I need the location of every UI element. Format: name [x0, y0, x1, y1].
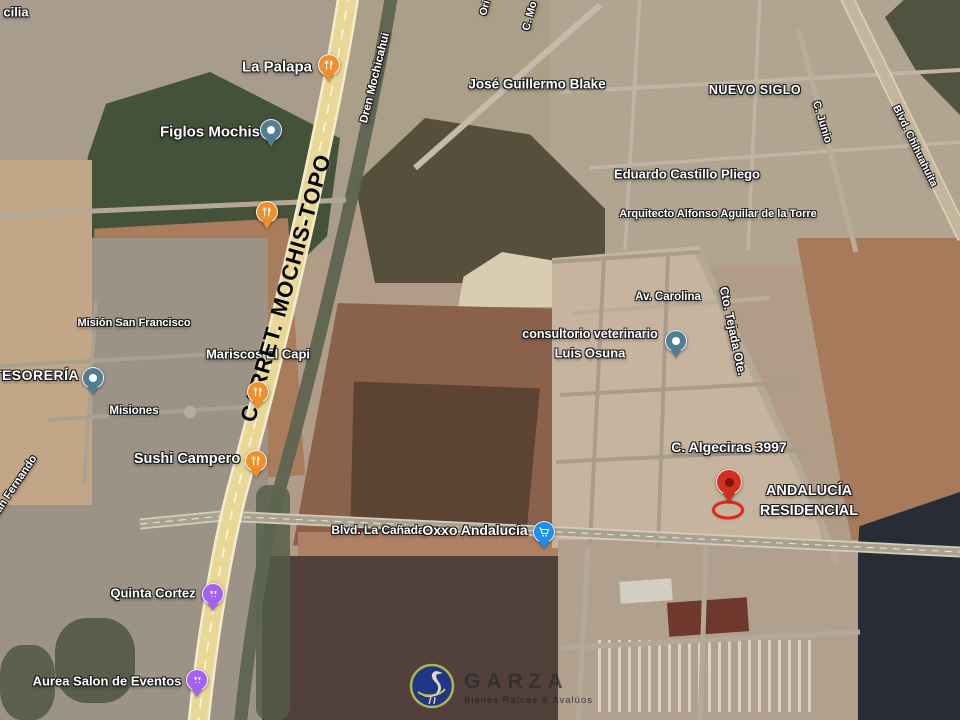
- road-roundabout: [184, 406, 196, 418]
- restaurant-pin-mariscos-el-capi[interactable]: [247, 381, 269, 409]
- event-pin-aurea-salon[interactable]: [186, 669, 208, 697]
- restaurant-pin-unnamed[interactable]: [256, 201, 278, 229]
- place-pin-tesoreria[interactable]: [82, 367, 104, 395]
- street-label-arquitecto-alfonso: Arquitecto Alfonso Aguilar de la Torre: [619, 208, 817, 220]
- watermark-brand: GARZA: [464, 671, 593, 692]
- glasses-icon: [208, 589, 219, 600]
- restaurant-pin-la-palapa[interactable]: [318, 54, 340, 82]
- garza-watermark: GARZA Bienes Raíces & Avalúos: [408, 662, 593, 715]
- dot-icon: [89, 374, 97, 382]
- street-label-c-algeciras-3997: C. Algeciras 3997: [671, 439, 786, 455]
- cart-icon: [538, 526, 550, 538]
- street-label-partial-cilia: cilia: [3, 5, 28, 20]
- destination-pin-andalucia-residencial[interactable]: [716, 469, 742, 503]
- place-pin-figlos-mochis[interactable]: [260, 119, 282, 147]
- poi-label-figlos-mochis[interactable]: Figlos Mochis: [160, 124, 260, 141]
- poi-label-oxxo-andalucia[interactable]: Oxxo Andalucía: [422, 522, 527, 538]
- pin-dot-icon: [725, 478, 734, 487]
- street-label-av-carolina: Av. Carolina: [635, 291, 701, 303]
- fork-knife-icon: [323, 59, 335, 71]
- poi-label-la-palapa[interactable]: La Palapa: [242, 59, 312, 76]
- poi-label-quinta-cortez[interactable]: Quinta Cortez: [110, 586, 195, 601]
- restaurant-pin-sushi-campero[interactable]: [245, 450, 267, 478]
- dot-icon: [267, 126, 275, 134]
- fork-knife-icon: [261, 206, 273, 218]
- area-label-nuevo-siglo: NUEVO SIGLO: [709, 83, 801, 97]
- road-construction-horizontal: [560, 632, 860, 648]
- street-label-blvd-la-canada: Blvd. La Cañada: [331, 523, 424, 537]
- poi-label-sushi-campero[interactable]: Sushi Campero: [134, 451, 240, 467]
- fork-knife-icon: [252, 386, 264, 398]
- watermark-tagline: Bienes Raíces & Avalúos: [464, 695, 593, 706]
- event-pin-quinta-cortez[interactable]: [202, 583, 224, 611]
- garza-heron-logo-icon: [408, 662, 456, 715]
- fork-knife-icon: [250, 455, 262, 467]
- glasses-icon: [192, 675, 203, 686]
- road-grid-top-edge: [552, 252, 700, 262]
- street-label-misiones: Misiones: [109, 405, 158, 417]
- store-pin-oxxo-andalucia[interactable]: [533, 521, 555, 549]
- highlight-ellipse: [712, 501, 744, 520]
- poi-label-consultorio-veterinario-line1[interactable]: consultorio veterinario: [522, 327, 657, 341]
- poi-label-tesoreria[interactable]: TESORERÍA: [0, 367, 79, 383]
- road-ne-street-2: [590, 142, 960, 168]
- highlight-label-residencial: RESIDENCIAL: [760, 503, 858, 519]
- area-label-mision-san-francisco: Misión San Francisco: [77, 317, 190, 329]
- dot-icon: [672, 337, 680, 345]
- poi-label-aurea-salon-de-eventos[interactable]: Aurea Salon de Eventos: [33, 674, 182, 689]
- place-pin-consultorio-veterinario[interactable]: [665, 330, 687, 358]
- highlight-label-andalucia: ANDALUCÍA: [766, 483, 852, 499]
- area-label-jose-guillermo-blake: José Guillermo Blake: [468, 77, 605, 92]
- poi-label-consultorio-veterinario-line2[interactable]: Luis Osuna: [555, 346, 626, 361]
- road-construction-vertical-2: [700, 545, 706, 720]
- road-grid-vertical-1: [590, 258, 604, 545]
- satellite-map[interactable]: cilia José Guillermo Blake NUEVO SIGLO E…: [0, 0, 960, 720]
- area-label-eduardo-castillo-pliego: Eduardo Castillo Pliego: [614, 167, 760, 182]
